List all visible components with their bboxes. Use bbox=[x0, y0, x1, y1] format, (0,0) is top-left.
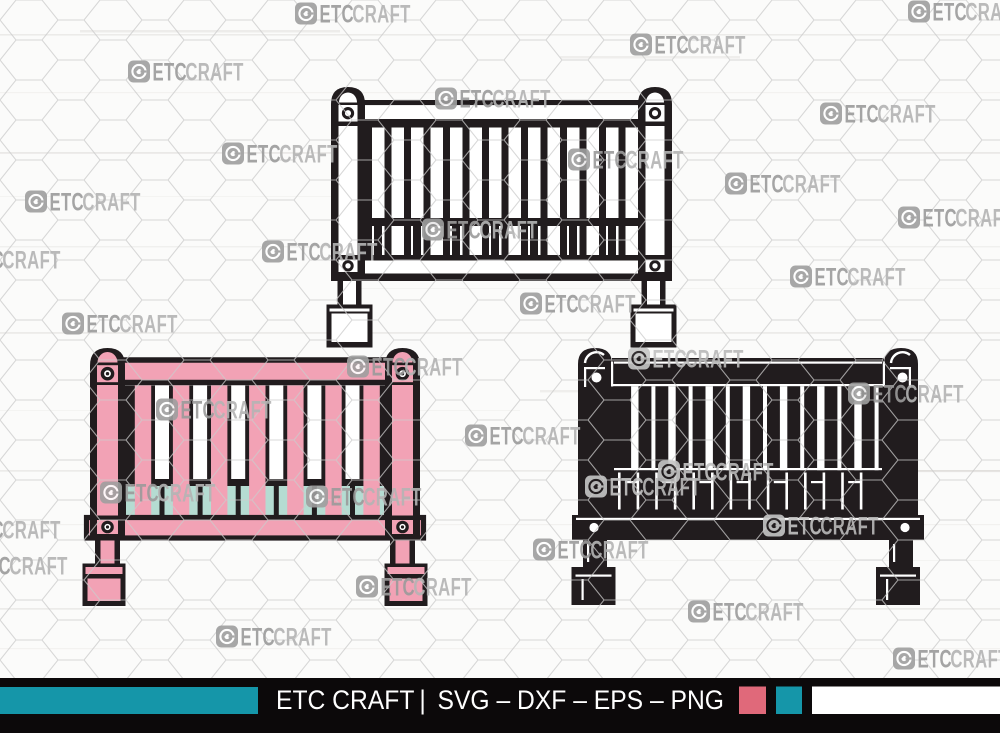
svg-text:ETC CRAFT | SVG – DXF – EPS –: ETC CRAFT | SVG – DXF – EPS – PNG bbox=[276, 685, 724, 715]
